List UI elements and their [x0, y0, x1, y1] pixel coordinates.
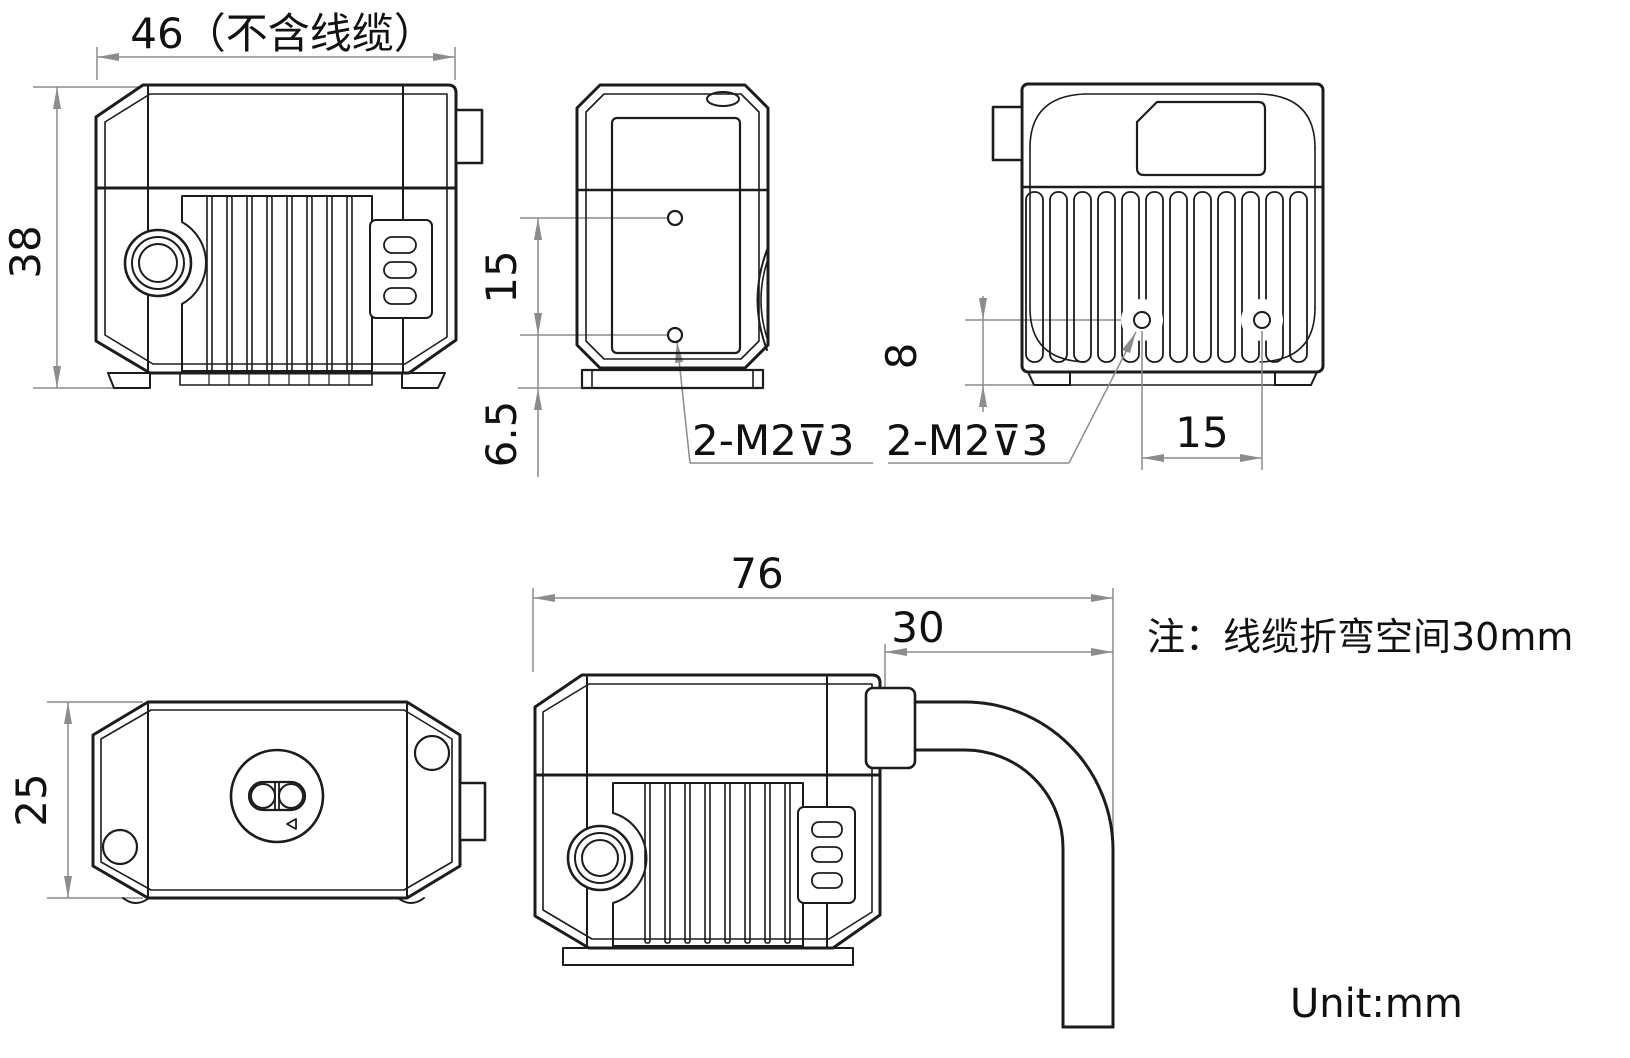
front-foot-left — [108, 373, 150, 388]
indicator-panel — [370, 220, 432, 318]
unit-label: Unit:mm — [1290, 981, 1463, 1027]
side-view: 15 6.5 2-M2⊽3 — [477, 85, 873, 477]
connector-pin — [279, 784, 303, 808]
heatsink-base — [182, 196, 372, 371]
front-width-dim-label: 46（不含线缆） — [130, 9, 435, 58]
front-view: 46（不含线缆） 38 — [1, 9, 482, 388]
cable — [915, 702, 1113, 1027]
rear-foot-left — [1028, 372, 1070, 385]
heatsink-fin — [1098, 192, 1115, 362]
rear-thread-callout: 2-M2⊽3 — [886, 416, 1048, 465]
rear-view: 8 15 2-M2⊽3 — [877, 84, 1323, 470]
heatsink-fin — [1170, 192, 1187, 362]
heatsink-fin — [1074, 192, 1091, 362]
corner-hole — [415, 736, 449, 770]
cable-lens — [568, 826, 632, 890]
rear-foot-right — [1275, 372, 1317, 385]
rear-corner-band — [1030, 94, 1085, 148]
heatsink-fin — [227, 196, 232, 371]
connector-pin — [251, 784, 275, 808]
side-hole-offset-label: 6.5 — [477, 401, 526, 468]
lens-ring-outer — [125, 230, 191, 296]
cable-gland — [866, 688, 915, 768]
rear-corner-band — [1260, 94, 1315, 148]
heatsink-fin — [327, 196, 332, 371]
top-view: 25 — [7, 702, 485, 903]
arrowhead — [64, 876, 72, 898]
side-thread-callout: 2-M2⊽3 — [692, 416, 854, 465]
arrowhead — [433, 53, 455, 61]
arrowhead — [1240, 454, 1262, 462]
top-body-inner-band — [101, 710, 452, 890]
arrowhead — [1091, 594, 1113, 602]
arrowhead — [534, 313, 542, 335]
cable-indicator-panel — [798, 807, 855, 903]
top-connector-face — [231, 750, 323, 842]
side-hole-spacing-label: 15 — [477, 250, 526, 303]
front-dimensions: 46（不含线缆） 38 — [1, 9, 455, 388]
arrowhead — [1091, 648, 1113, 656]
heatsink-fin — [1194, 192, 1211, 362]
cable-bend-dim-label: 30 — [891, 603, 944, 652]
heatsink-fin — [207, 196, 212, 371]
orientation-triangle — [287, 819, 296, 829]
technical-drawing-page: 46（不含线缆） 38 — [0, 0, 1630, 1053]
heatsink-fin — [287, 196, 292, 371]
note-text: 注：线缆折弯空间30mm — [1147, 615, 1573, 659]
arrowhead — [979, 298, 987, 320]
arrowhead — [97, 53, 119, 61]
heatsink-fin — [307, 196, 312, 371]
top-connector-tab — [460, 783, 485, 840]
side-dimensions: 15 6.5 2-M2⊽3 — [477, 218, 873, 477]
lens-profile-bump-inner — [761, 262, 767, 338]
corner-hole — [103, 830, 137, 864]
rear-hole-offset-label: 8 — [877, 343, 926, 370]
side-face-panel — [612, 118, 740, 353]
rear-corner-band — [1030, 308, 1085, 362]
arrowhead — [534, 218, 542, 240]
front-connector-tab — [456, 110, 482, 163]
heatsink-fin — [347, 196, 352, 371]
arrowhead — [53, 366, 61, 388]
heatsink-fin — [1290, 192, 1307, 362]
side-foot-strip — [582, 370, 763, 388]
rear-connector-tab — [993, 107, 1022, 160]
cable-side-view: 76 30 — [533, 549, 1113, 1027]
cable-overall-dim-label: 76 — [730, 549, 783, 598]
top-depth-label: 25 — [7, 773, 56, 826]
top-dimensions: 25 — [7, 702, 143, 898]
rear-hole-spacing-label: 15 — [1175, 408, 1228, 457]
arrowhead — [533, 594, 555, 602]
cable-foot-strip — [563, 948, 853, 965]
heatsink-fin — [267, 196, 272, 371]
leader-line — [1069, 332, 1136, 463]
arrowhead — [979, 385, 987, 407]
rear-window — [1137, 102, 1265, 175]
heatsink-fin — [1050, 192, 1067, 362]
arrowhead — [53, 87, 61, 109]
heatsink-fin — [1026, 192, 1043, 362]
mounting-hole — [668, 211, 682, 225]
lens-ring-outer — [568, 826, 632, 890]
arrowhead — [534, 388, 542, 410]
mounting-hole — [668, 328, 682, 342]
arrowhead — [64, 702, 72, 724]
arrowhead — [1142, 454, 1164, 462]
heatsink-fins — [207, 196, 352, 385]
heatsink-fin — [1218, 192, 1235, 362]
dimension-drawing: 46（不含线缆） 38 — [0, 0, 1630, 1053]
front-height-dim-label: 38 — [1, 225, 50, 278]
front-foot-right — [402, 373, 445, 388]
cable-inner-edge — [915, 750, 1063, 1027]
lens — [125, 230, 191, 296]
heatsink-fin — [247, 196, 252, 371]
